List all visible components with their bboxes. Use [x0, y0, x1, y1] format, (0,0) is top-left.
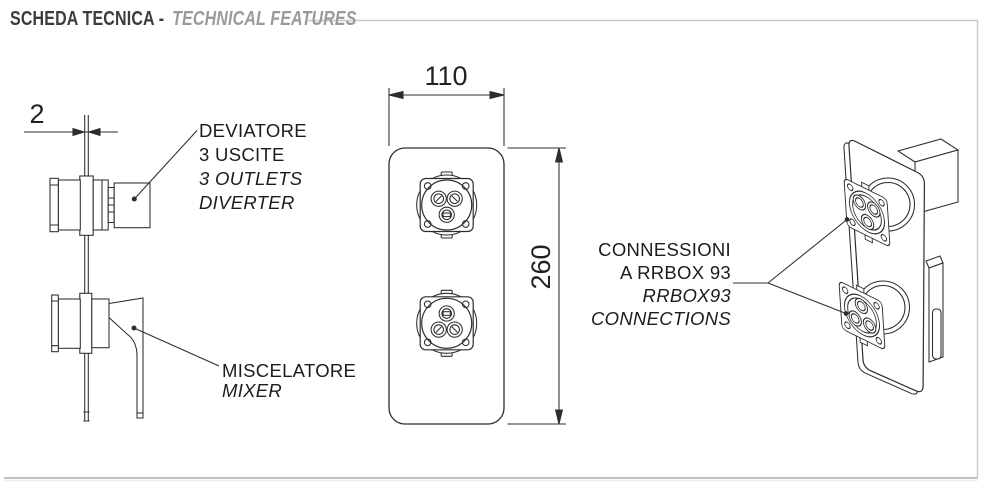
connections-leader [733, 218, 849, 316]
mixer-label-line1: MISCELATORE [222, 361, 356, 381]
mixer-leader [132, 326, 219, 366]
mixer-profile [52, 293, 143, 418]
diverter-label-line3: 3 OUTLETS [199, 167, 307, 191]
mixer-handle [109, 298, 143, 418]
sheet-title-italian: SCHEDA TECNICA - [10, 8, 164, 30]
diverter-profile [50, 176, 150, 235]
connections-label-line2: A RRBOX 93 [551, 261, 731, 284]
sheet-title-english: TECHNICAL FEATURES [172, 8, 357, 30]
technical-sheet-page: SCHEDA TECNICA - TECHNICAL FEATURES 2 11… [0, 0, 1000, 500]
diverter-label-line4: DIVERTER [199, 191, 307, 215]
connections-label: CONNESSIONI A RRBOX 93 RRBOX93 CONNECTIO… [551, 238, 731, 330]
diverter-leader [132, 131, 197, 202]
connections-label-line3: RRBOX93 [551, 284, 731, 307]
connections-label-line4: CONNECTIONS [551, 307, 731, 330]
plate-thickness-dimension-label: 2 [24, 99, 50, 129]
iso-view [733, 139, 958, 394]
front-diverter-unit [417, 172, 477, 238]
side-view [24, 115, 219, 421]
sheet-title: SCHEDA TECNICA - TECHNICAL FEATURES [10, 8, 357, 31]
diverter-label: DEVIATORE 3 USCITE 3 OUTLETS DIVERTER [199, 119, 307, 215]
iso-bracket [926, 256, 943, 362]
mixer-label-line2: MIXER [222, 381, 356, 401]
diverter-knob [114, 183, 150, 228]
plate-width-dimension-label: 110 [406, 61, 486, 91]
width-dimension [389, 88, 504, 146]
wall-plate-profile [83, 115, 89, 421]
connections-label-line1: CONNESSIONI [551, 238, 731, 261]
diverter-label-line1: DEVIATORE [199, 119, 307, 143]
drawing-canvas [0, 0, 1000, 500]
thickness-dimension [24, 129, 118, 136]
mixer-label: MISCELATORE MIXER [222, 361, 356, 400]
front-mixer-unit [417, 290, 477, 356]
diverter-label-line2: 3 USCITE [199, 143, 307, 167]
